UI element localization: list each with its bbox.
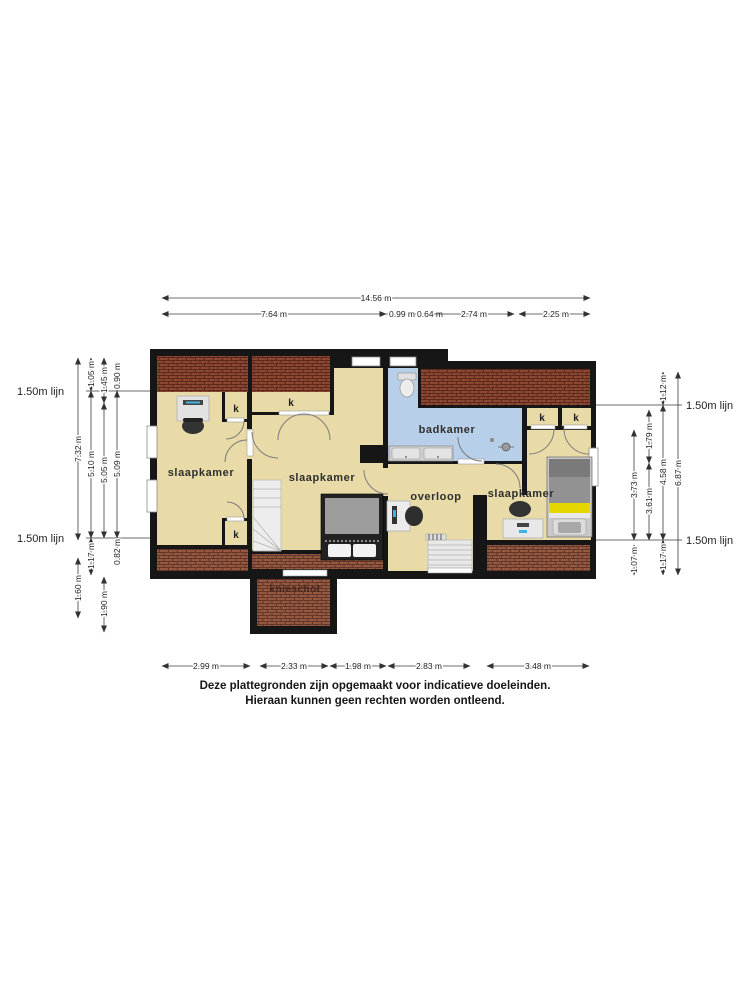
dim-left-c3-2: 5.05 m [99, 457, 109, 483]
dim-right-c3-1: 1.12 m [658, 375, 668, 401]
label-closet-4: k [539, 413, 545, 424]
roof-zone-bottom-right [487, 545, 590, 571]
label-closet-2: k [288, 398, 294, 409]
disclaimer: Deze plattegronden zijn opgemaakt voor i… [200, 680, 551, 707]
window-top-middle [352, 357, 380, 366]
label-bedroom-right: slaapkamer [488, 488, 555, 500]
dim-bottom-3: 1.98 m [345, 661, 371, 671]
dim-left-c1-1: 7.32 m [73, 436, 83, 462]
label-knee-wall: knieschot [269, 584, 320, 595]
floorplan-svg: slaapkamer slaapkamer slaapkamer badkame… [0, 0, 750, 1000]
dim-top-1: 7.64 m [261, 309, 287, 319]
hatch-knieschot [283, 570, 327, 576]
window-bathroom [390, 357, 416, 366]
ref-line-left-lower: 1.50m lijn [17, 533, 64, 545]
roof-zone-top-middle [252, 356, 330, 392]
door-closet-right-1 [531, 425, 555, 429]
dim-left-c3-1: 1.45 m [99, 367, 109, 393]
dim-top-4: 2.74 m [461, 309, 487, 319]
room-bedroom-middle-column [334, 368, 383, 418]
winder-stairs [253, 480, 281, 551]
floorplan-page: slaapkamer slaapkamer slaapkamer badkame… [0, 0, 750, 1000]
dimensions-right: 3.73 m 1.07 m 1.79 m 3.61 m 1.12 m 4.58 … [629, 372, 683, 575]
dim-top-5: 2.25 m [543, 309, 569, 319]
bed-middle-bedroom [321, 494, 383, 560]
dim-left-c4-1: 0.90 m [112, 363, 122, 389]
door-closet-right-2 [564, 425, 587, 429]
dim-left-c2-1: 1.05 m [86, 361, 96, 387]
ref-line-right-upper: 1.50m lijn [686, 400, 733, 412]
dim-bottom-2: 2.33 m [281, 661, 307, 671]
disclaimer-line-1: Deze plattegronden zijn opgemaakt voor i… [200, 680, 551, 692]
dim-right-c4-1: 6.87 m [673, 460, 683, 486]
window-left-upper [147, 426, 157, 458]
disclaimer-line-2: Hieraan kunnen geen rechten worden ontle… [245, 695, 504, 707]
floor-plan: slaapkamer slaapkamer slaapkamer badkame… [147, 349, 598, 634]
dim-left-c2-2: 5.10 m [86, 451, 96, 477]
dim-top-2: 0.99 m [389, 309, 415, 319]
dim-right-c3-2: 4.58 m [658, 459, 668, 485]
dim-top-total: 14.56 m [361, 293, 392, 303]
dim-right-c1-1: 3.73 m [629, 472, 639, 498]
door-gap-middle-landing [383, 468, 388, 496]
dim-bottom-1: 2.99 m [193, 661, 219, 671]
dim-bottom-4: 2.83 m [416, 661, 442, 671]
door-bathroom [458, 459, 484, 464]
dim-bottom-5: 3.48 m [525, 661, 551, 671]
door-closet-left-bottom [227, 517, 244, 521]
dimensions-left: 7.32 m 1.60 m 1.05 m 5.10 m 1.17 m 1.45 … [73, 358, 122, 632]
roof-zone-bottom-left [157, 549, 248, 571]
dim-right-c1-2: 1.07 m [629, 547, 639, 573]
dim-left-c4-3: 0.82 m [112, 539, 122, 565]
label-bedroom-middle: slaapkamer [289, 472, 356, 484]
dim-left-c3-3: 1.90 m [99, 591, 109, 617]
ref-line-left-upper: 1.50m lijn [17, 386, 64, 398]
roof-zone-top-left [157, 356, 248, 392]
label-landing: overloop [410, 491, 461, 503]
roof-zone-top-right [421, 369, 590, 405]
label-bathroom: badkamer [419, 424, 476, 436]
double-sink [389, 446, 453, 461]
dim-left-c1-2: 1.60 m [73, 575, 83, 601]
dim-right-c2-2: 3.61 m [644, 488, 654, 514]
dim-left-c2-3: 1.17 m [86, 543, 96, 569]
dim-left-c4-2: 5.09 m [112, 451, 122, 477]
door-closet-left-top [227, 418, 244, 422]
straight-stairs [426, 534, 472, 573]
dim-right-c2-1: 1.79 m [644, 423, 654, 449]
label-closet-3: k [233, 530, 239, 541]
label-bedroom-left: slaapkamer [168, 467, 235, 479]
label-closet-5: k [573, 413, 579, 424]
ref-line-right-lower: 1.50m lijn [686, 535, 733, 547]
dimensions-bottom: 2.99 m 2.33 m 1.98 m 2.83 m 3.48 m [162, 661, 589, 671]
dim-right-c3-3: 1.17 m [658, 544, 668, 570]
window-left-lower [147, 480, 157, 512]
dimensions-top: 14.56 m 7.64 m 0.99 m 0.64 m 2.74 m 2.25… [162, 293, 590, 319]
label-closet-1: k [233, 404, 239, 415]
